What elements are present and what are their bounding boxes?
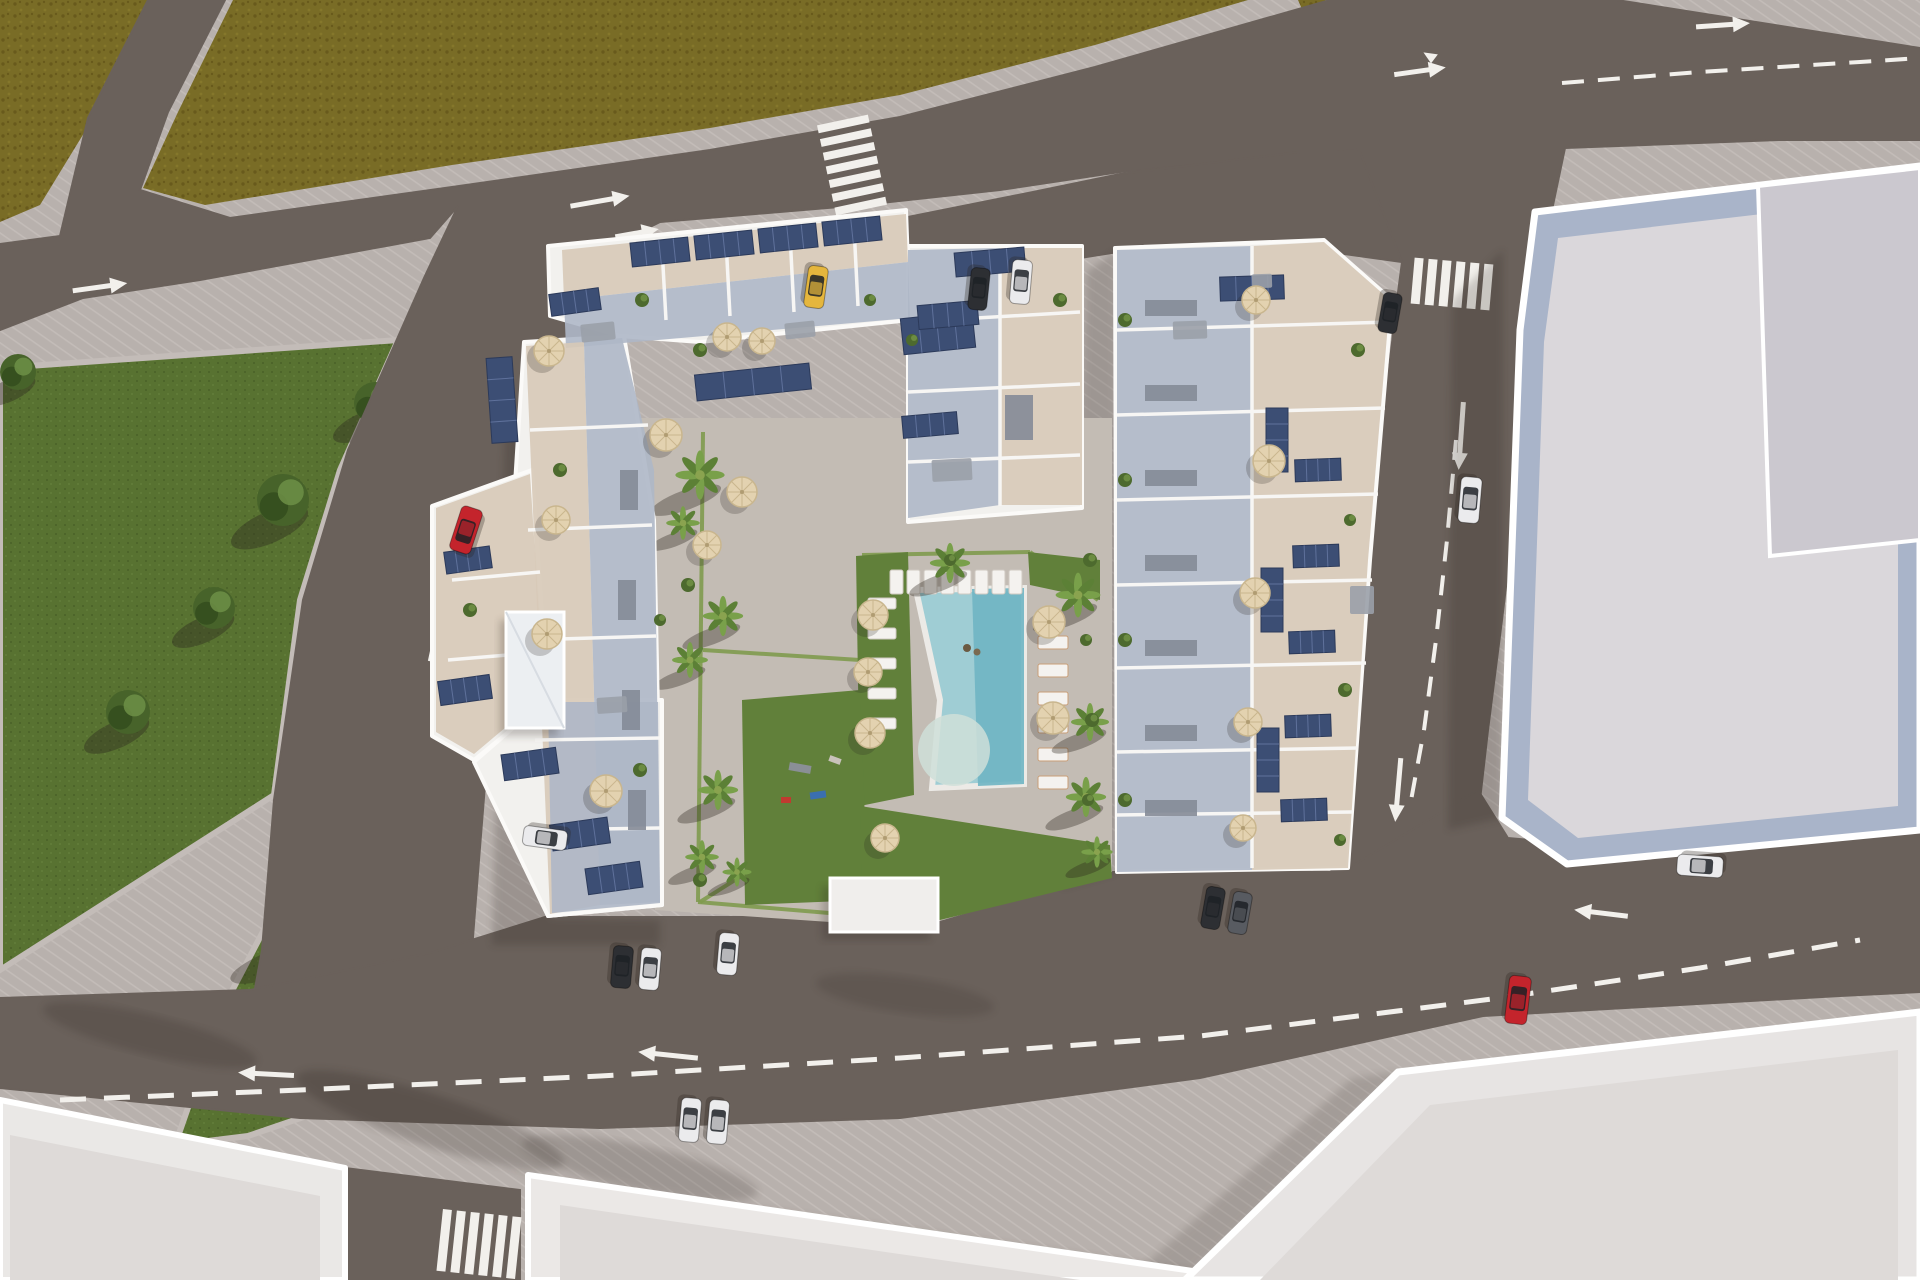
terrace-plant [1349,515,1355,521]
car-roof [1463,494,1477,509]
umbrella-pole [1254,298,1258,302]
terrace-plant [699,345,706,352]
sun-lounger [975,570,988,594]
terrace-plant [1339,835,1345,841]
sun-lounger [992,570,1005,594]
sun-lounger [1038,664,1068,677]
umbrella-pole [1246,720,1250,724]
terrace-plant [1124,635,1131,642]
umbrella-pole [604,789,608,793]
umbrella-pole [664,433,668,437]
terrace-plant [559,465,566,472]
solar-panel-array [1295,458,1342,482]
solar-panel-array [1289,630,1336,654]
terrace-plant [687,580,694,587]
terrace-plant [659,615,665,621]
cast-shadow [1448,250,1503,830]
terrace-wall [535,738,660,740]
car-dark-parked-south [606,942,634,989]
terrace-plant [1124,315,1131,322]
terrace-plant [1087,795,1093,801]
umbrella-pole [760,339,764,343]
car-roof [721,948,734,962]
car-roof [615,961,628,975]
terrace-plant [1091,715,1098,722]
swimming-pool-shallow [918,714,990,786]
palm-crown [734,869,740,875]
terrace-plant [1089,555,1096,562]
car-roof [1014,276,1027,290]
solar-panel-array [1257,728,1279,792]
palm-crown [1094,849,1100,855]
car-white-south-road [1676,850,1727,878]
terrace-table [784,320,816,339]
palm-crown [695,470,705,480]
car-dark-parked [963,264,991,311]
stairwell [1005,395,1033,440]
umbrella-pole [725,335,729,339]
car-roof [809,281,823,295]
terrace-plant [911,335,917,341]
car-roof [1233,907,1246,921]
sun-lounger [1038,776,1068,789]
car-roof [1206,902,1219,916]
terrace-plant [1059,295,1066,302]
umbrella-pole [866,670,870,674]
palm-crown [714,786,722,794]
swimmer [974,649,981,656]
car-white-parked-south [712,929,740,976]
terrace-plant [1357,345,1364,352]
swimmer [963,644,971,652]
terrace-plant [1085,635,1091,641]
sun-lounger [890,570,903,594]
stairwell [620,470,638,510]
car-white-east-road [1454,473,1483,524]
terrace-plant [639,765,646,772]
car-roof [973,283,986,297]
stairwell [1145,555,1197,571]
tree-canopy [14,358,32,376]
palm-crown [680,520,687,527]
stairwell [1145,385,1197,401]
car-roof [1691,859,1706,873]
car-roof [643,963,656,977]
aerial-render-canvas [0,0,1920,1280]
aerial-site-render [0,0,1920,1280]
terrace-plant [1344,685,1351,692]
terrace-plant [869,295,875,301]
terrace-table [1350,586,1374,614]
terrace-plant [641,295,648,302]
solar-panel-array [902,412,959,439]
umbrella-pole [871,613,875,617]
terrace-table [931,458,972,482]
terrace-plant [469,605,476,612]
tree-canopy [278,479,304,505]
car-roof [1510,993,1525,1009]
building-east-large-upper-block [1758,168,1920,556]
car-white-parked [1005,256,1033,305]
palm-crown [719,612,727,620]
umbrella-pole [740,490,744,494]
stairwell [1145,725,1197,741]
stairwell [1145,800,1197,816]
playground-equipment [781,797,791,803]
terrace-plant [1124,795,1131,802]
car-roof [1383,307,1396,321]
umbrella-pole [705,543,709,547]
tree-canopy [210,591,231,612]
solar-panel-array [1281,798,1328,822]
solar-panel-array [1285,714,1332,738]
solar-panel-array [1293,544,1340,568]
car-white-parked-bottom [674,1094,702,1143]
umbrella-pole [1253,591,1257,595]
palm-crown [686,656,693,663]
stairwell [628,790,646,830]
umbrella-pole [545,632,549,636]
stairwell [1145,300,1197,316]
terrace-table [596,696,627,714]
sun-lounger [868,688,896,699]
car-roof [536,831,551,845]
courtyard-lawn [742,690,868,905]
tree-canopy [124,694,146,716]
entrance-pavilion [830,878,938,932]
terrace-table [580,321,616,342]
umbrella-pole [1051,716,1055,720]
car-white-parked-south [634,944,662,991]
umbrella-pole [868,731,872,735]
terrace-plant [1124,475,1131,482]
umbrella-pole [1047,620,1051,624]
umbrella-pole [1241,826,1245,830]
terrace-plant [949,555,955,561]
umbrella-pole [1267,459,1271,463]
terrace-plant [699,875,706,882]
stairwell [1145,470,1197,486]
umbrella-pole [547,349,551,353]
car-white-parked-bottom [702,1096,730,1145]
car-roof [711,1116,724,1130]
stairwell [1145,640,1197,656]
sun-lounger [1009,570,1022,594]
umbrella-pole [883,836,887,840]
palm-crown [699,854,706,861]
palm-crown [1074,591,1083,600]
car-roof [683,1114,696,1128]
solar-panel-array [486,357,518,444]
terrace-table [1173,320,1208,339]
umbrella-pole [554,518,558,522]
stairwell [618,580,636,620]
